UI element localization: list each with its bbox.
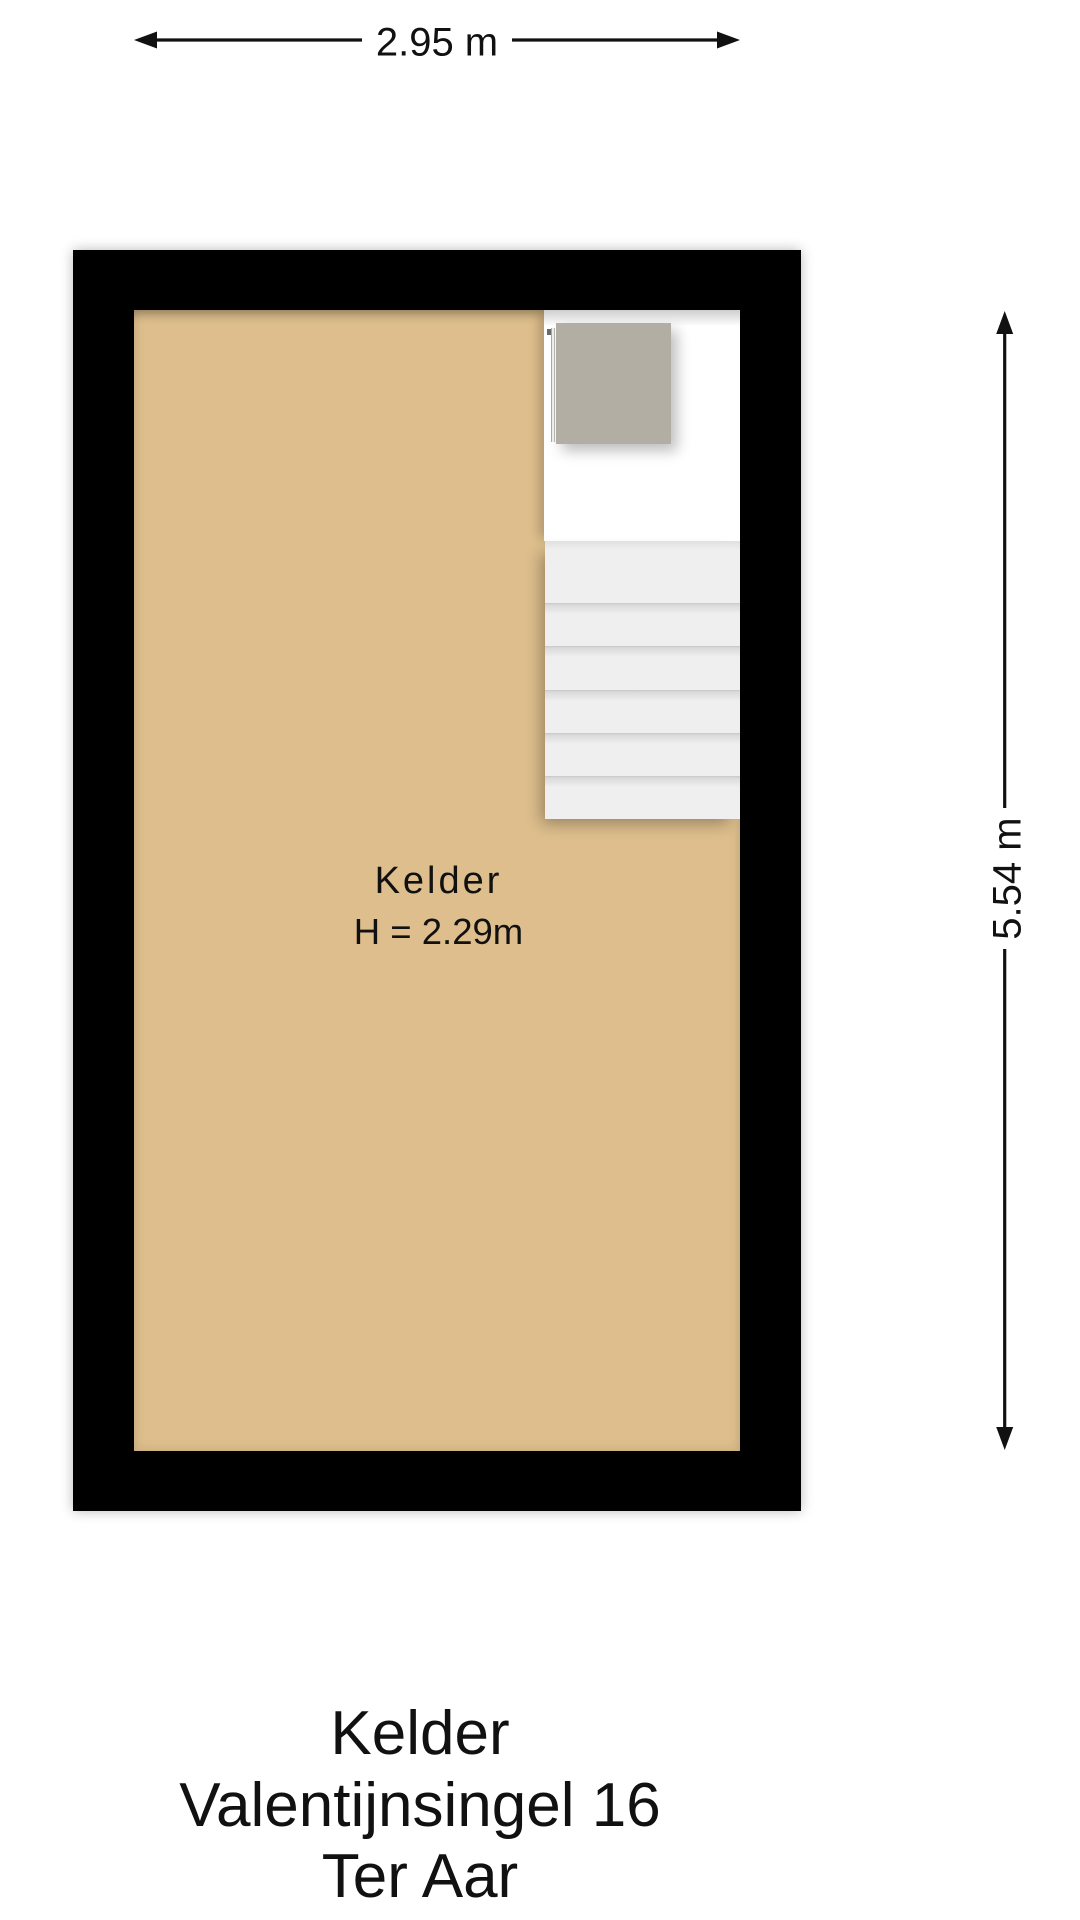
svg-text:2.95 m: 2.95 m bbox=[376, 21, 498, 65]
svg-text:5.54 m: 5.54 m bbox=[986, 817, 1030, 939]
